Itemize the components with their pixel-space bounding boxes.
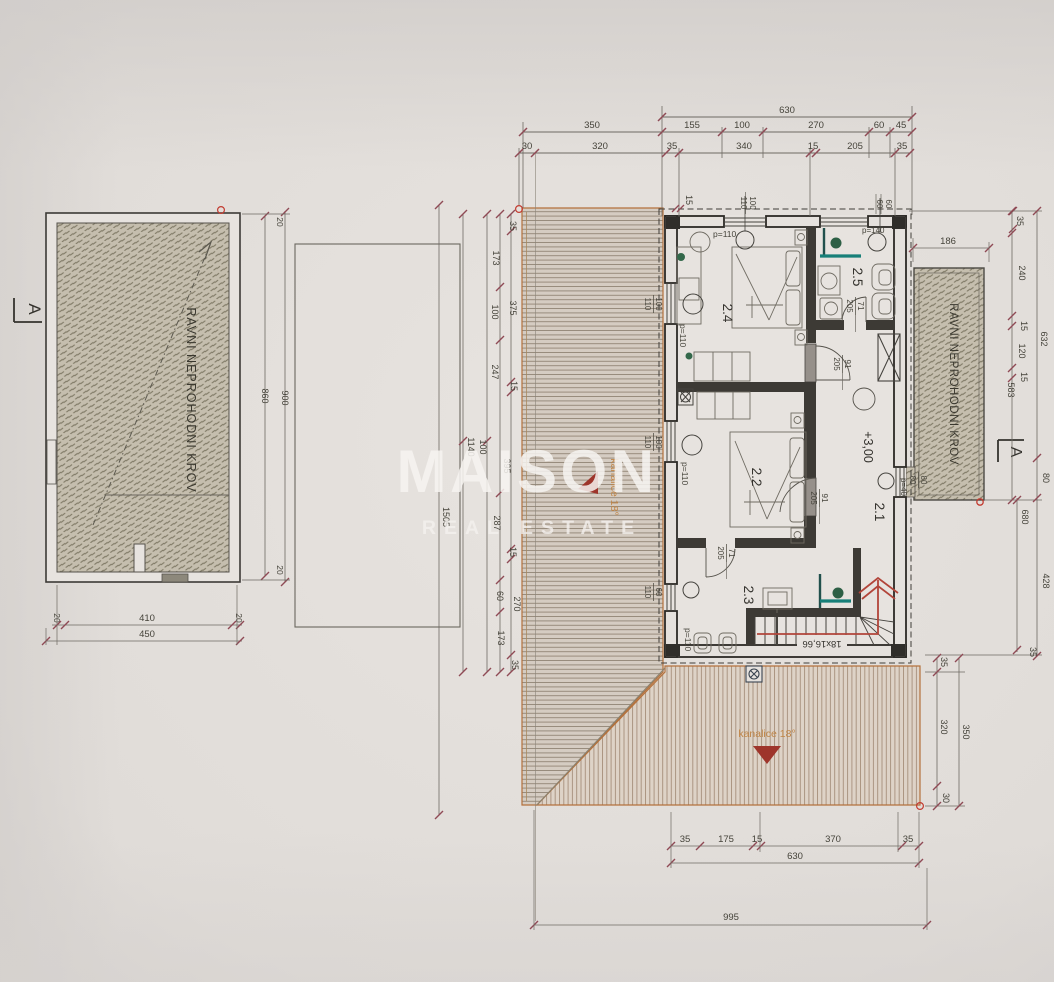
svg-text:350: 350 xyxy=(584,120,600,131)
svg-text:91: 91 xyxy=(820,494,829,503)
svg-text:p=110: p=110 xyxy=(680,462,690,486)
svg-text:175: 175 xyxy=(718,834,734,845)
svg-text:91: 91 xyxy=(843,360,852,369)
svg-text:35: 35 xyxy=(508,221,518,231)
svg-text:15: 15 xyxy=(508,547,518,557)
svg-text:110: 110 xyxy=(739,197,748,210)
svg-text:71: 71 xyxy=(856,302,865,311)
svg-text:410: 410 xyxy=(139,613,155,624)
svg-text:2.2: 2.2 xyxy=(749,468,764,487)
svg-text:45: 45 xyxy=(896,120,907,131)
svg-text:270: 270 xyxy=(808,120,824,131)
svg-text:2.4: 2.4 xyxy=(720,304,735,323)
svg-text:110: 110 xyxy=(643,586,652,599)
svg-text:630: 630 xyxy=(779,105,795,116)
svg-text:632: 632 xyxy=(1039,331,1049,346)
svg-text:MAISON: MAISON xyxy=(397,438,658,505)
svg-text:15: 15 xyxy=(1019,372,1029,382)
svg-text:35: 35 xyxy=(1028,647,1038,657)
svg-text:30: 30 xyxy=(941,793,951,803)
svg-text:15: 15 xyxy=(684,195,694,205)
svg-text:+3,00: +3,00 xyxy=(861,431,875,463)
svg-text:120: 120 xyxy=(1017,343,1027,358)
svg-text:35: 35 xyxy=(510,660,520,670)
svg-text:p=110: p=110 xyxy=(683,628,693,652)
svg-text:630: 630 xyxy=(787,851,803,862)
svg-text:35: 35 xyxy=(1015,216,1025,226)
svg-text:428: 428 xyxy=(1041,573,1051,588)
svg-text:60: 60 xyxy=(875,200,884,209)
svg-text:20: 20 xyxy=(275,565,285,575)
svg-text:30: 30 xyxy=(522,141,533,152)
svg-text:71: 71 xyxy=(727,549,736,558)
svg-text:247: 247 xyxy=(490,364,500,379)
svg-text:205: 205 xyxy=(847,141,863,152)
svg-text:680: 680 xyxy=(1020,509,1030,524)
svg-text:110: 110 xyxy=(643,298,652,311)
svg-text:205: 205 xyxy=(809,491,818,505)
svg-text:450: 450 xyxy=(139,629,155,640)
svg-text:205: 205 xyxy=(716,546,725,560)
svg-text:p=140: p=140 xyxy=(862,226,885,235)
svg-text:270: 270 xyxy=(512,596,522,611)
svg-text:240: 240 xyxy=(1017,265,1027,280)
svg-text:860: 860 xyxy=(260,388,270,403)
svg-text:320: 320 xyxy=(592,141,608,152)
svg-text:340: 340 xyxy=(736,141,752,152)
svg-text:18x16,66: 18x16,66 xyxy=(802,638,841,649)
svg-text:186: 186 xyxy=(940,236,956,247)
svg-text:15: 15 xyxy=(509,381,519,391)
svg-text:2.3: 2.3 xyxy=(741,586,756,605)
svg-text:350: 350 xyxy=(961,724,971,739)
svg-text:900: 900 xyxy=(280,390,290,405)
svg-text:100: 100 xyxy=(748,196,757,210)
svg-text:80: 80 xyxy=(919,476,928,485)
svg-text:995: 995 xyxy=(723,912,739,923)
svg-text:173: 173 xyxy=(496,630,506,645)
svg-text:kanalice 18°: kanalice 18° xyxy=(738,728,795,740)
svg-text:REAL ESTATE: REAL ESTATE xyxy=(422,517,642,539)
svg-text:p=40: p=40 xyxy=(899,478,908,497)
svg-text:A: A xyxy=(25,303,44,315)
svg-text:80: 80 xyxy=(908,476,917,485)
svg-text:15: 15 xyxy=(1019,321,1029,331)
svg-text:2.1: 2.1 xyxy=(872,503,887,522)
svg-text:p=110: p=110 xyxy=(713,229,737,239)
svg-text:p=110: p=110 xyxy=(678,324,688,348)
svg-text:60: 60 xyxy=(495,591,505,601)
svg-text:60: 60 xyxy=(874,120,885,131)
svg-text:173: 173 xyxy=(491,250,501,265)
svg-text:RAVNI NEPROHODNI KROV: RAVNI NEPROHODNI KROV xyxy=(184,307,198,492)
svg-text:583: 583 xyxy=(1006,382,1016,397)
svg-text:35: 35 xyxy=(680,834,691,845)
svg-text:60: 60 xyxy=(884,200,893,209)
svg-text:100: 100 xyxy=(734,120,750,131)
svg-text:15: 15 xyxy=(752,834,763,845)
svg-text:100: 100 xyxy=(490,304,500,319)
svg-text:80: 80 xyxy=(1041,473,1051,483)
svg-text:370: 370 xyxy=(825,834,841,845)
svg-text:RAVNI NEPROHODNI KROV: RAVNI NEPROHODNI KROV xyxy=(947,303,959,465)
svg-text:205: 205 xyxy=(832,357,841,371)
svg-text:A: A xyxy=(1007,447,1024,458)
svg-text:205: 205 xyxy=(845,299,854,313)
svg-text:155: 155 xyxy=(684,120,700,131)
svg-text:2.5: 2.5 xyxy=(850,268,865,287)
svg-text:20: 20 xyxy=(275,217,285,227)
svg-text:320: 320 xyxy=(939,719,949,734)
svg-text:375: 375 xyxy=(508,300,518,315)
svg-text:35: 35 xyxy=(939,657,949,667)
